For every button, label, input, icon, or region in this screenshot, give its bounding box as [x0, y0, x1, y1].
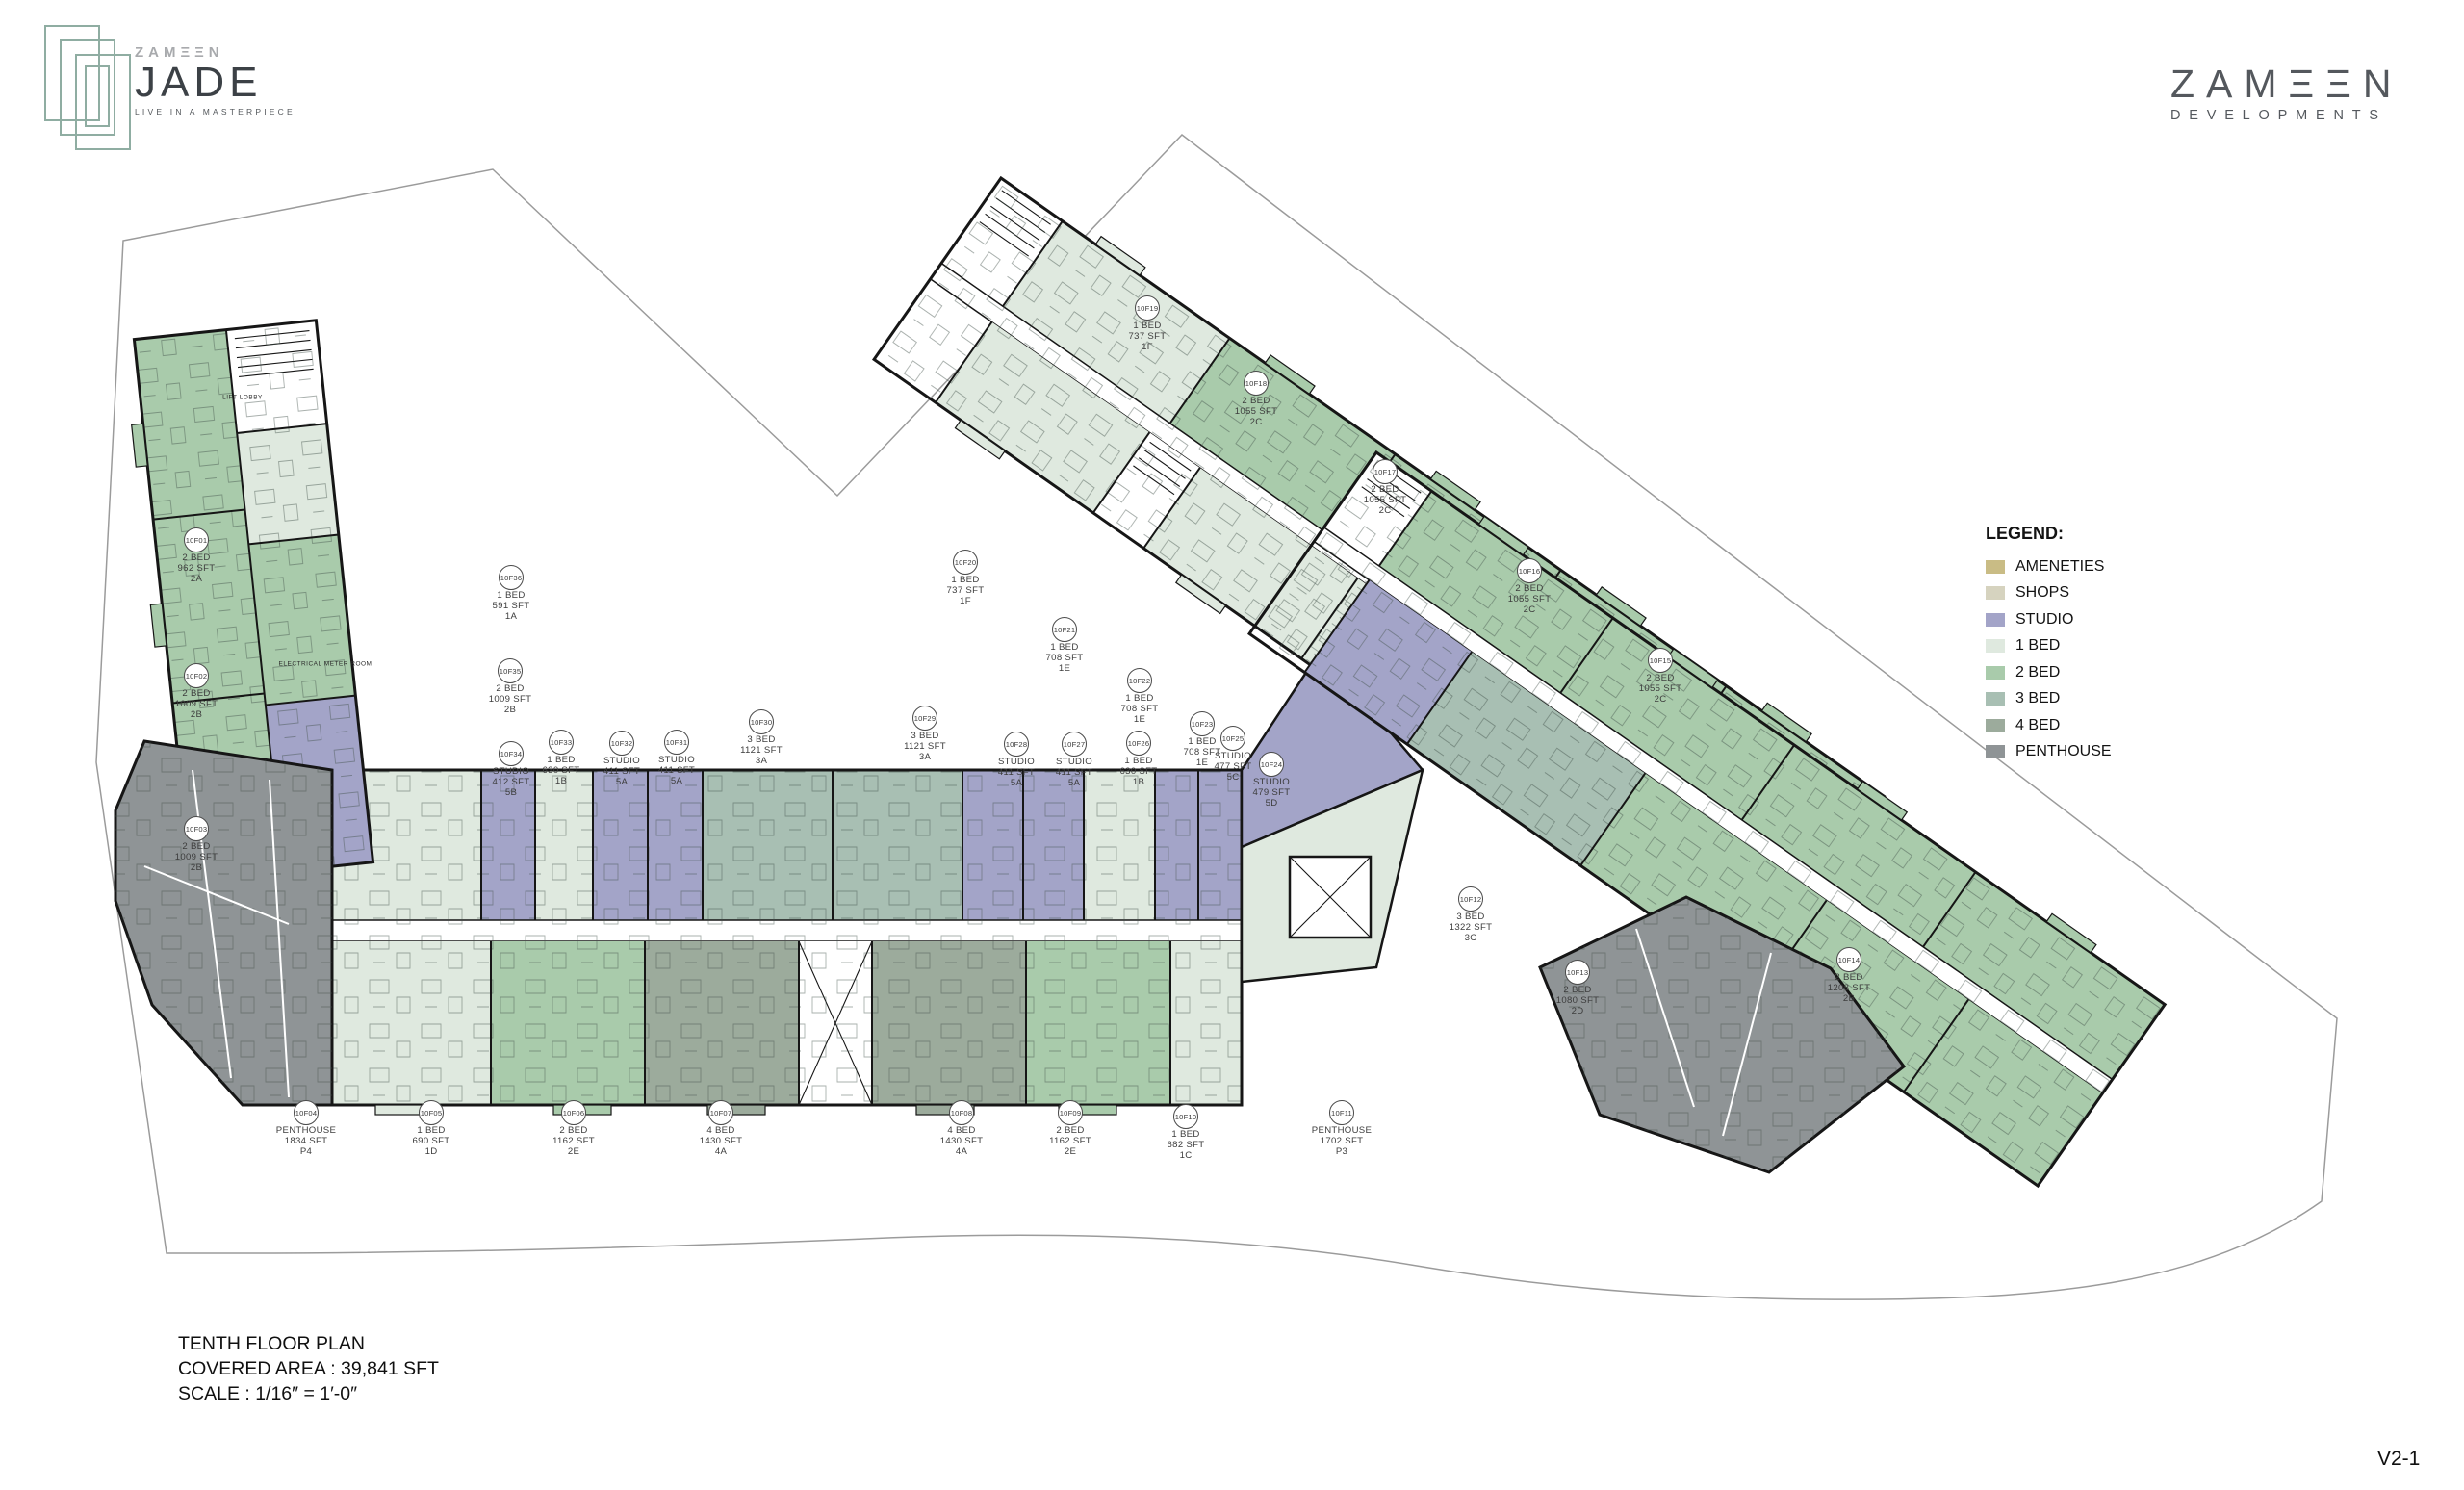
- legend-swatch: [1986, 719, 2005, 732]
- legend-item-shops: SHOPS: [1986, 580, 2207, 607]
- developer-name: ZAMΞΞN: [2170, 64, 2440, 104]
- brand-logo: ZAMΞΞN JADE LIVE IN A MASTERPIECE: [44, 25, 362, 150]
- title-block: TENTH FLOOR PLAN COVERED AREA : 39,841 S…: [178, 1331, 439, 1406]
- legend-label: 4 BED: [2015, 717, 2060, 734]
- legend-label: SHOPS: [2015, 584, 2069, 602]
- legend-swatch: [1986, 586, 2005, 600]
- sheet-number: V2-1: [2377, 1448, 2420, 1471]
- plan-title: TENTH FLOOR PLAN: [178, 1331, 439, 1356]
- scale-note: SCALE : 1/16″ = 1′-0″: [178, 1381, 439, 1406]
- legend: LEGEND: AMENETIESSHOPSSTUDIO1 BED2 BED3 …: [1986, 524, 2207, 765]
- legend-swatch: [1986, 666, 2005, 680]
- legend-swatch: [1986, 613, 2005, 627]
- developer-subtitle: DEVELOPMENTS: [2170, 108, 2440, 123]
- legend-label: 1 BED: [2015, 637, 2060, 655]
- plan-annotation: ELECTRICAL METER ROOM: [279, 661, 372, 668]
- covered-area: COVERED AREA : 39,841 SFT: [178, 1356, 439, 1381]
- legend-label: 2 BED: [2015, 664, 2060, 681]
- legend-item-4-bed: 4 BED: [1986, 712, 2207, 739]
- plan-annotation: LIFT LOBBY: [222, 395, 263, 401]
- legend-swatch: [1986, 639, 2005, 653]
- legend-items: AMENETIESSHOPSSTUDIO1 BED2 BED3 BED4 BED…: [1986, 553, 2207, 765]
- legend-swatch: [1986, 745, 2005, 758]
- legend-title: LEGEND:: [1986, 524, 2207, 544]
- penthouse-p4-cluster: [115, 741, 332, 1105]
- central-wing: [289, 770, 1242, 1115]
- legend-label: 3 BED: [2015, 690, 2060, 707]
- legend-item-2-bed: 2 BED: [1986, 659, 2207, 686]
- legend-item-penthouse: PENTHOUSE: [1986, 739, 2207, 766]
- legend-item-3-bed: 3 BED: [1986, 686, 2207, 713]
- legend-label: STUDIO: [2015, 611, 2073, 629]
- floor-plan-sheet: ZAMΞΞN JADE LIVE IN A MASTERPIECE ZAMΞΞN…: [0, 0, 2464, 1490]
- legend-item-ameneties: AMENETIES: [1986, 553, 2207, 580]
- legend-swatch: [1986, 692, 2005, 706]
- legend-item-1-bed: 1 BED: [1986, 633, 2207, 660]
- logo-project-name: JADE: [135, 61, 356, 105]
- logo-tagline: LIVE IN A MASTERPIECE: [135, 107, 356, 116]
- legend-label: PENTHOUSE: [2015, 743, 2112, 760]
- legend-swatch: [1986, 560, 2005, 574]
- legend-item-studio: STUDIO: [1986, 606, 2207, 633]
- developer-logo: ZAMΞΞN DEVELOPMENTS: [2170, 64, 2440, 123]
- legend-label: AMENETIES: [2015, 558, 2104, 576]
